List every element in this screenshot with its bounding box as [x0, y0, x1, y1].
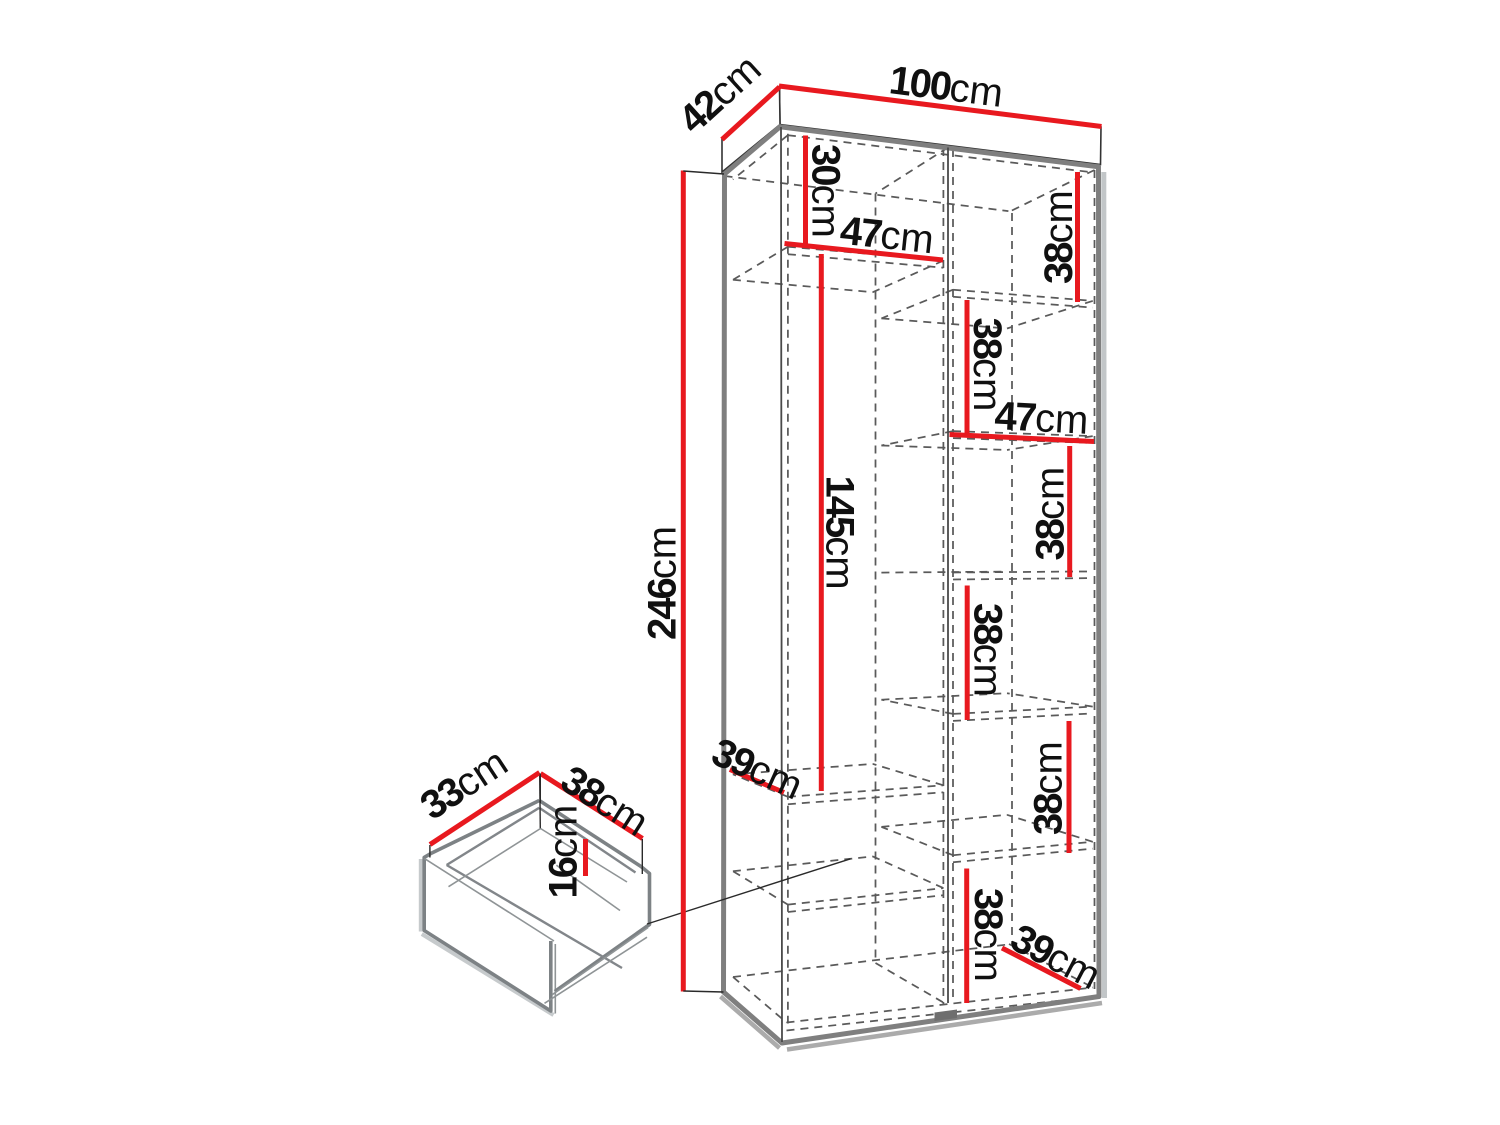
svg-text:38cm: 38cm: [1037, 190, 1081, 284]
svg-text:47cm: 47cm: [994, 394, 1090, 443]
svg-text:16cm: 16cm: [542, 805, 586, 899]
svg-text:38cm: 38cm: [966, 888, 1010, 982]
svg-text:38cm: 38cm: [1029, 467, 1073, 561]
svg-text:38cm: 38cm: [1026, 741, 1070, 835]
svg-text:38cm: 38cm: [965, 603, 1009, 697]
svg-text:145cm: 145cm: [818, 476, 862, 590]
svg-text:246cm: 246cm: [641, 526, 685, 640]
